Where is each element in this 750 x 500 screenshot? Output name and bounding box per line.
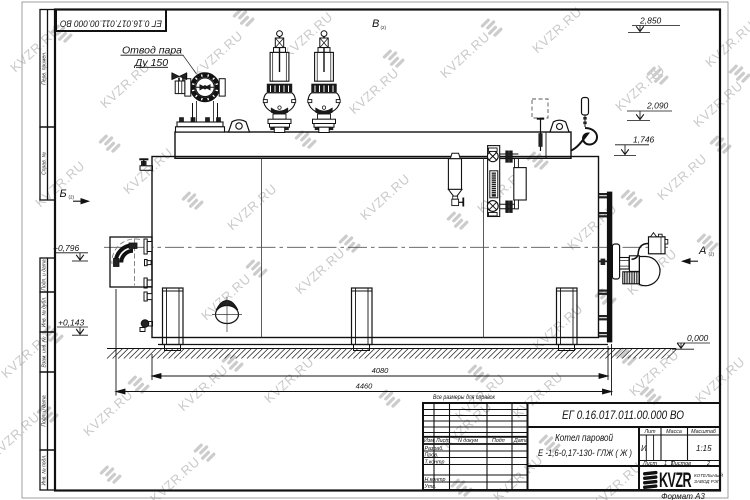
svg-text:Перв. примен.: Перв. примен. (42, 52, 48, 85)
svg-text:А: А (698, 245, 706, 257)
svg-text:Лист: Лист (435, 438, 450, 444)
svg-text:2,090: 2,090 (646, 101, 669, 111)
svg-text:Подп. и дата: Подп. и дата (42, 259, 48, 291)
svg-text:4080: 4080 (372, 366, 390, 375)
svg-text:N докум: N докум (458, 438, 478, 444)
svg-text:Разраб.: Разраб. (425, 446, 444, 452)
svg-text:Лит: Лит (644, 429, 657, 435)
svg-text:Взам. инв. №: Взам. инв. № (42, 336, 48, 368)
svg-text:Все размеры для справок: Все размеры для справок (433, 393, 496, 401)
svg-text:Инв. № дубл.: Инв. № дубл. (42, 297, 48, 328)
svg-text:Формат А3: Формат А3 (661, 492, 705, 500)
svg-text:4460: 4460 (356, 382, 374, 391)
svg-text:(2): (2) (709, 252, 715, 257)
svg-text:Листов: Листов (670, 461, 691, 467)
svg-text:1: 1 (664, 461, 667, 467)
svg-text:1,746: 1,746 (633, 135, 655, 145)
svg-text:(2): (2) (381, 25, 387, 30)
svg-text:Изм: Изм (424, 438, 434, 444)
svg-text:2,850: 2,850 (639, 16, 662, 26)
svg-text:Справ. №: Справ. № (42, 152, 48, 175)
svg-text:+0,796: +0,796 (53, 243, 80, 253)
svg-text:Подп: Подп (492, 438, 505, 444)
svg-text:2: 2 (706, 461, 710, 467)
svg-text:KVZR: KVZR (659, 469, 691, 492)
svg-text:Подп. и дата: Подп. и дата (42, 395, 48, 427)
svg-text:Н.контр: Н.контр (425, 477, 446, 483)
svg-text:Котел паровой: Котел паровой (555, 432, 613, 444)
svg-text:Утв.: Утв. (425, 484, 437, 490)
svg-text:(2): (2) (69, 195, 75, 200)
svg-text:Т.контр: Т.контр (425, 460, 445, 466)
svg-text:Инв. № подл.: Инв. № подл. (42, 454, 48, 485)
svg-text:+0,143: +0,143 (58, 318, 85, 328)
svg-text:КОТЕЛЬНЫЙ: КОТЕЛЬНЫЙ (694, 471, 724, 478)
svg-text:1:15: 1:15 (696, 444, 712, 453)
svg-text:Е -1,6-0,17-130- ГЛЖ ( Ж ): Е -1,6-0,17-130- ГЛЖ ( Ж ) (538, 448, 632, 458)
svg-text:ЕГ 0.16.017.011.00.000 ВО: ЕГ 0.16.017.011.00.000 ВО (562, 410, 684, 422)
svg-text:Б: Б (60, 188, 67, 200)
svg-text:ЗАВОД РЭП: ЗАВОД РЭП (694, 479, 721, 484)
svg-text:Отвод пара: Отвод пара (122, 45, 182, 57)
svg-text:Масштаб: Масштаб (691, 429, 717, 435)
svg-text:И: И (641, 444, 647, 453)
svg-text:Пров.: Пров. (425, 453, 439, 459)
svg-text:В: В (372, 18, 379, 30)
svg-text:Дата: Дата (513, 438, 528, 444)
svg-text:ЕГ 0.16.017.011.00.000 ВО: ЕГ 0.16.017.011.00.000 ВО (60, 19, 162, 29)
svg-text:Лист: Лист (642, 461, 658, 467)
svg-text:0,000: 0,000 (687, 333, 709, 343)
svg-text:Масса: Масса (666, 429, 682, 435)
